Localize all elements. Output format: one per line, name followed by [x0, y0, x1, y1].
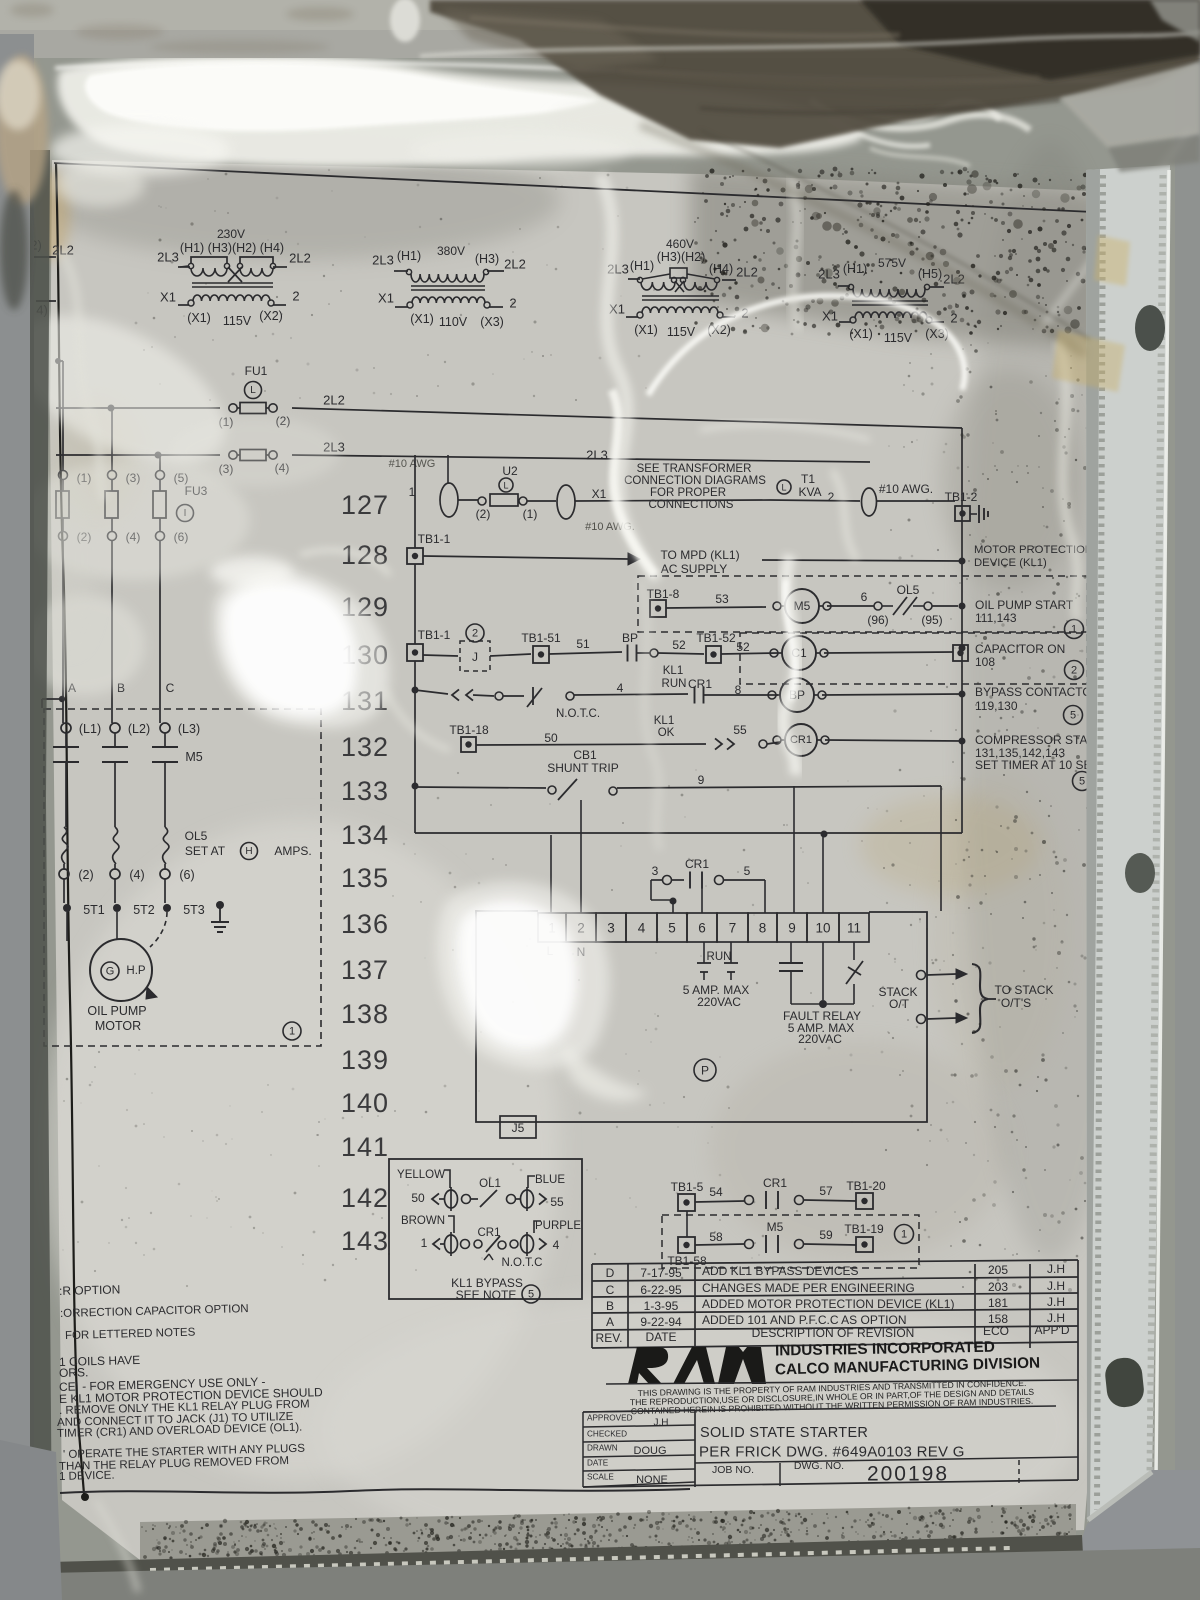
svg-text:#10 AWG: #10 AWG: [389, 458, 436, 470]
svg-text:(4): (4): [129, 868, 144, 882]
svg-text:(X2): (X2): [259, 309, 283, 323]
svg-text:137: 137: [341, 955, 389, 985]
svg-text:J.H: J.H: [1047, 1262, 1065, 1276]
svg-text:115V: 115V: [667, 325, 696, 339]
svg-text:108: 108: [975, 655, 995, 669]
svg-text:KVA: KVA: [798, 485, 821, 499]
svg-text:115V: 115V: [884, 331, 913, 345]
svg-text:7-17-95: 7-17-95: [640, 1266, 682, 1280]
svg-text:ADD KL1 BYPASS DEVICES: ADD KL1 BYPASS DEVICES: [702, 1264, 859, 1278]
svg-text:J: J: [472, 650, 478, 664]
svg-text:OK: OK: [658, 727, 675, 739]
svg-text:52: 52: [736, 640, 750, 654]
svg-text:N.O.T.C: N.O.T.C: [502, 1257, 543, 1269]
svg-text:220VAC: 220VAC: [697, 995, 741, 1009]
svg-text:(H1): (H1): [630, 259, 654, 273]
svg-text:ADDED MOTOR PROTECTION DEVICE: ADDED MOTOR PROTECTION DEVICE (KL1): [702, 1297, 954, 1311]
svg-text:50: 50: [544, 731, 558, 745]
svg-text:57: 57: [819, 1184, 833, 1198]
svg-text:JOB NO.: JOB NO.: [712, 1464, 754, 1476]
svg-text:OL1: OL1: [479, 1178, 501, 1190]
svg-text:1: 1: [421, 1236, 428, 1250]
svg-text:9-22-94: 9-22-94: [640, 1315, 682, 1329]
svg-text:PER FRICK DWG. #649A0103 REV G: PER FRICK DWG. #649A0103 REV G: [699, 1444, 965, 1461]
svg-text:P: P: [701, 1064, 709, 1078]
svg-text:133: 133: [341, 776, 389, 806]
svg-text:11: 11: [847, 921, 861, 936]
svg-text:1 DEVICE.: 1 DEVICE.: [59, 1470, 115, 1483]
svg-text:2L3: 2L3: [372, 253, 394, 268]
svg-text:(95): (95): [921, 613, 942, 627]
svg-text:L: L: [781, 483, 786, 493]
svg-text:TB1-1: TB1-1: [418, 532, 451, 546]
svg-text:J5: J5: [512, 1121, 525, 1135]
svg-text:110V: 110V: [439, 315, 468, 329]
svg-text:2L3: 2L3: [586, 448, 608, 463]
svg-text:SEE TRANSFORMER: SEE TRANSFORMER: [637, 463, 752, 475]
svg-text:5T3: 5T3: [183, 903, 205, 917]
svg-text:(H3): (H3): [475, 252, 499, 266]
svg-text:(X1): (X1): [634, 323, 658, 337]
svg-text:APPROVED: APPROVED: [587, 1414, 633, 1423]
svg-text:5: 5: [744, 864, 751, 878]
svg-text:C: C: [606, 1283, 615, 1297]
svg-text:M5: M5: [794, 599, 811, 613]
svg-text:7: 7: [729, 921, 737, 936]
svg-text:TB1-52: TB1-52: [696, 631, 736, 645]
svg-text:CONNECTIONS: CONNECTIONS: [649, 499, 734, 511]
svg-text:M5: M5: [767, 1220, 784, 1234]
svg-text:(6): (6): [179, 868, 194, 882]
svg-text:203: 203: [988, 1280, 1008, 1294]
svg-text:5: 5: [668, 921, 676, 936]
svg-text:143: 143: [341, 1226, 389, 1256]
svg-text:380V: 380V: [437, 244, 465, 258]
svg-text:SET AT: SET AT: [185, 844, 226, 858]
svg-text:9: 9: [698, 773, 705, 787]
svg-text:(X3): (X3): [480, 315, 504, 329]
svg-text:REV.: REV.: [596, 1331, 623, 1345]
svg-text:YELLOW: YELLOW: [397, 1169, 445, 1181]
svg-text:AMPS.: AMPS.: [274, 844, 311, 858]
svg-text:55: 55: [733, 723, 747, 737]
svg-text:OL5: OL5: [185, 829, 208, 843]
svg-text:220VAC: 220VAC: [798, 1032, 842, 1046]
svg-text:10: 10: [815, 921, 830, 936]
svg-text:SHUNT TRIP: SHUNT TRIP: [547, 761, 619, 775]
svg-text:J.H: J.H: [1047, 1279, 1065, 1293]
svg-text:ECO: ECO: [983, 1324, 1009, 1338]
svg-text:ORS.: ORS.: [59, 1365, 89, 1380]
svg-text:DATE: DATE: [587, 1459, 609, 1468]
svg-text:2: 2: [1071, 665, 1077, 677]
svg-text:(L3): (L3): [178, 722, 200, 736]
svg-text:A: A: [606, 1315, 614, 1329]
svg-text:CONNECTION DIAGRAMS: CONNECTION DIAGRAMS: [624, 475, 766, 487]
svg-text:D: D: [606, 1266, 615, 1280]
svg-text:3: 3: [607, 921, 615, 936]
svg-text:(X1): (X1): [849, 327, 873, 341]
svg-text:2: 2: [828, 490, 835, 504]
svg-text:KL1: KL1: [654, 715, 674, 727]
svg-text:119,130: 119,130: [975, 699, 1018, 713]
svg-text:4: 4: [553, 1238, 560, 1252]
svg-text:140: 140: [341, 1088, 389, 1118]
svg-text:TB1-8: TB1-8: [647, 587, 680, 601]
svg-text::R OPTION: :R OPTION: [59, 1282, 121, 1298]
svg-text:53: 53: [715, 592, 729, 606]
svg-text:DWG. NO.: DWG. NO.: [794, 1460, 844, 1472]
svg-text:G: G: [106, 966, 115, 978]
svg-text:115V: 115V: [223, 314, 252, 328]
svg-text:TB1-18: TB1-18: [449, 723, 489, 737]
svg-text:H.P: H.P: [126, 965, 146, 977]
svg-text:U2: U2: [502, 464, 518, 478]
svg-text:DEVICE (KL1): DEVICE (KL1): [974, 557, 1047, 569]
svg-text:460V: 460V: [666, 237, 694, 251]
svg-text:1: 1: [289, 1026, 295, 1038]
svg-text:142: 142: [341, 1183, 389, 1213]
svg-text:2: 2: [292, 289, 299, 304]
svg-text:T1: T1: [801, 472, 815, 486]
svg-text:BROWN: BROWN: [401, 1215, 445, 1227]
svg-text:(L2): (L2): [128, 722, 150, 736]
svg-text:2L2: 2L2: [504, 257, 526, 272]
svg-text:(H1) (H3)(H2) (H4): (H1) (H3)(H2) (H4): [180, 241, 284, 255]
svg-text:4: 4: [617, 681, 624, 695]
svg-text:6: 6: [861, 590, 868, 604]
svg-text:X1: X1: [592, 487, 607, 501]
svg-text:OL5: OL5: [897, 583, 920, 597]
svg-text:J.H: J.H: [654, 1418, 669, 1429]
svg-text:8: 8: [759, 921, 767, 936]
svg-text:2L2: 2L2: [736, 265, 758, 280]
svg-text:KL1: KL1: [663, 665, 683, 677]
svg-text:DOUG: DOUG: [634, 1445, 667, 1457]
svg-text:SEE NOTE: SEE NOTE: [456, 1288, 517, 1302]
svg-text:5T2: 5T2: [133, 903, 155, 917]
svg-text:M5: M5: [185, 750, 202, 764]
svg-text:1-3-95: 1-3-95: [644, 1299, 679, 1313]
svg-text:BYPASS CONTACTOR: BYPASS CONTACTOR: [975, 685, 1101, 699]
svg-text:SET TIMER AT 10 SE: SET TIMER AT 10 SE: [975, 758, 1092, 772]
svg-text:O/T'S: O/T'S: [1001, 996, 1031, 1010]
svg-text:(2): (2): [476, 507, 491, 521]
svg-text:50: 50: [411, 1191, 425, 1205]
svg-text:L: L: [250, 385, 256, 396]
svg-text:59: 59: [819, 1228, 833, 1242]
svg-text:TO MPD (KL1): TO MPD (KL1): [660, 548, 739, 562]
svg-text:1: 1: [901, 1229, 907, 1241]
svg-text:3: 3: [652, 864, 659, 878]
svg-text:APP'D: APP'D: [1035, 1323, 1070, 1337]
svg-text:2L2: 2L2: [289, 251, 311, 266]
svg-text:CR1: CR1: [477, 1227, 500, 1239]
svg-text:58: 58: [709, 1230, 723, 1244]
svg-text:6: 6: [698, 921, 706, 936]
svg-text:141: 141: [341, 1132, 389, 1162]
svg-text:51: 51: [576, 637, 590, 651]
svg-text:(96): (96): [867, 613, 888, 627]
svg-text:RUN: RUN: [707, 951, 732, 963]
svg-text:5: 5: [1079, 776, 1085, 788]
svg-text:CHANGES MADE PER ENGINEERING: CHANGES MADE PER ENGINEERING: [702, 1281, 915, 1295]
svg-text:(X1): (X1): [410, 312, 434, 326]
svg-text:139: 139: [341, 1045, 389, 1075]
svg-text:135: 135: [341, 863, 389, 893]
svg-text:FU1: FU1: [245, 364, 268, 378]
svg-text:(X1): (X1): [187, 311, 211, 325]
svg-text:111,143: 111,143: [975, 611, 1017, 625]
svg-text:52: 52: [672, 638, 686, 652]
svg-text:X1: X1: [160, 290, 176, 305]
svg-text:TB1-19: TB1-19: [844, 1222, 884, 1236]
svg-text:54: 54: [709, 1185, 723, 1199]
svg-text:138: 138: [341, 999, 389, 1029]
svg-text:(H1): (H1): [397, 249, 421, 263]
svg-text:N.O.T.C.: N.O.T.C.: [556, 708, 600, 720]
svg-text:(H3)(H2): (H3)(H2): [657, 250, 706, 264]
svg-text:L: L: [503, 481, 508, 491]
svg-text:6-22-95: 6-22-95: [640, 1283, 682, 1297]
svg-text:CR1: CR1: [688, 677, 712, 691]
svg-text:CHECKED: CHECKED: [587, 1430, 627, 1439]
svg-text:2: 2: [472, 628, 478, 640]
svg-text:CR1: CR1: [763, 1176, 787, 1190]
svg-text:COMPRESSOR START: COMPRESSOR START: [975, 733, 1104, 747]
svg-text:FOR PROPER: FOR PROPER: [650, 487, 726, 499]
svg-text:2L3: 2L3: [157, 250, 179, 265]
svg-text:2L2: 2L2: [323, 393, 345, 408]
svg-text:J.H: J.H: [1047, 1295, 1065, 1309]
svg-text:AC SUPPLY: AC SUPPLY: [661, 562, 727, 576]
svg-text:H: H: [245, 846, 252, 857]
svg-text:X1: X1: [378, 291, 394, 306]
svg-text:(L1): (L1): [79, 722, 101, 736]
svg-text:BP: BP: [622, 631, 638, 645]
svg-text:SCALE: SCALE: [587, 1473, 614, 1482]
svg-text:CB1: CB1: [573, 748, 597, 762]
svg-text:TB1-5: TB1-5: [671, 1180, 704, 1194]
svg-text:SOLID STATE STARTER: SOLID STATE STARTER: [700, 1425, 868, 1441]
svg-text:O/T: O/T: [889, 997, 910, 1011]
svg-text:OIL PUMP START: OIL PUMP START: [975, 598, 1074, 612]
svg-text:ADDED 101 AND P.F.C.C AS OPTIO: ADDED 101 AND P.F.C.C AS OPTION: [702, 1313, 907, 1327]
svg-text:PURPLE: PURPLE: [535, 1220, 581, 1232]
svg-text:(2): (2): [78, 868, 93, 882]
svg-text:CAPACITOR ON: CAPACITOR ON: [975, 642, 1065, 656]
svg-text:TB1-1: TB1-1: [418, 628, 451, 642]
svg-text:5: 5: [1070, 710, 1076, 722]
svg-text:B: B: [606, 1299, 614, 1313]
svg-text:DRAWN: DRAWN: [587, 1444, 618, 1453]
svg-text:#10 AWG.: #10 AWG.: [879, 482, 933, 496]
svg-text:4: 4: [638, 921, 646, 936]
svg-text:127: 127: [341, 490, 389, 520]
svg-text:TB1-20: TB1-20: [846, 1179, 886, 1193]
svg-text:NONE: NONE: [636, 1474, 668, 1486]
svg-text:DESCRIPTION OF REVISION: DESCRIPTION OF REVISION: [752, 1326, 915, 1340]
svg-text:OIL PUMP: OIL PUMP: [87, 1004, 146, 1018]
svg-text:205: 205: [988, 1263, 1008, 1277]
svg-text:55: 55: [550, 1195, 564, 1209]
svg-text:132: 132: [341, 732, 389, 762]
svg-text:9: 9: [788, 921, 796, 936]
svg-text:DATE: DATE: [645, 1330, 676, 1344]
svg-text:5T1: 5T1: [83, 903, 105, 917]
svg-text:MOTOR: MOTOR: [95, 1019, 141, 1033]
svg-text:5: 5: [528, 1289, 534, 1301]
svg-text:230V: 230V: [217, 227, 245, 241]
svg-text:C: C: [166, 681, 175, 695]
svg-text:575V: 575V: [878, 256, 906, 270]
svg-text:136: 136: [341, 909, 389, 939]
svg-text:181: 181: [988, 1296, 1008, 1310]
svg-text:TB1-51: TB1-51: [521, 631, 561, 645]
svg-text:TO STACK: TO STACK: [995, 983, 1054, 997]
svg-text:(1): (1): [523, 507, 538, 521]
svg-text:134: 134: [341, 820, 389, 850]
svg-text:RUN: RUN: [662, 678, 687, 690]
svg-text:BLUE: BLUE: [535, 1174, 565, 1186]
